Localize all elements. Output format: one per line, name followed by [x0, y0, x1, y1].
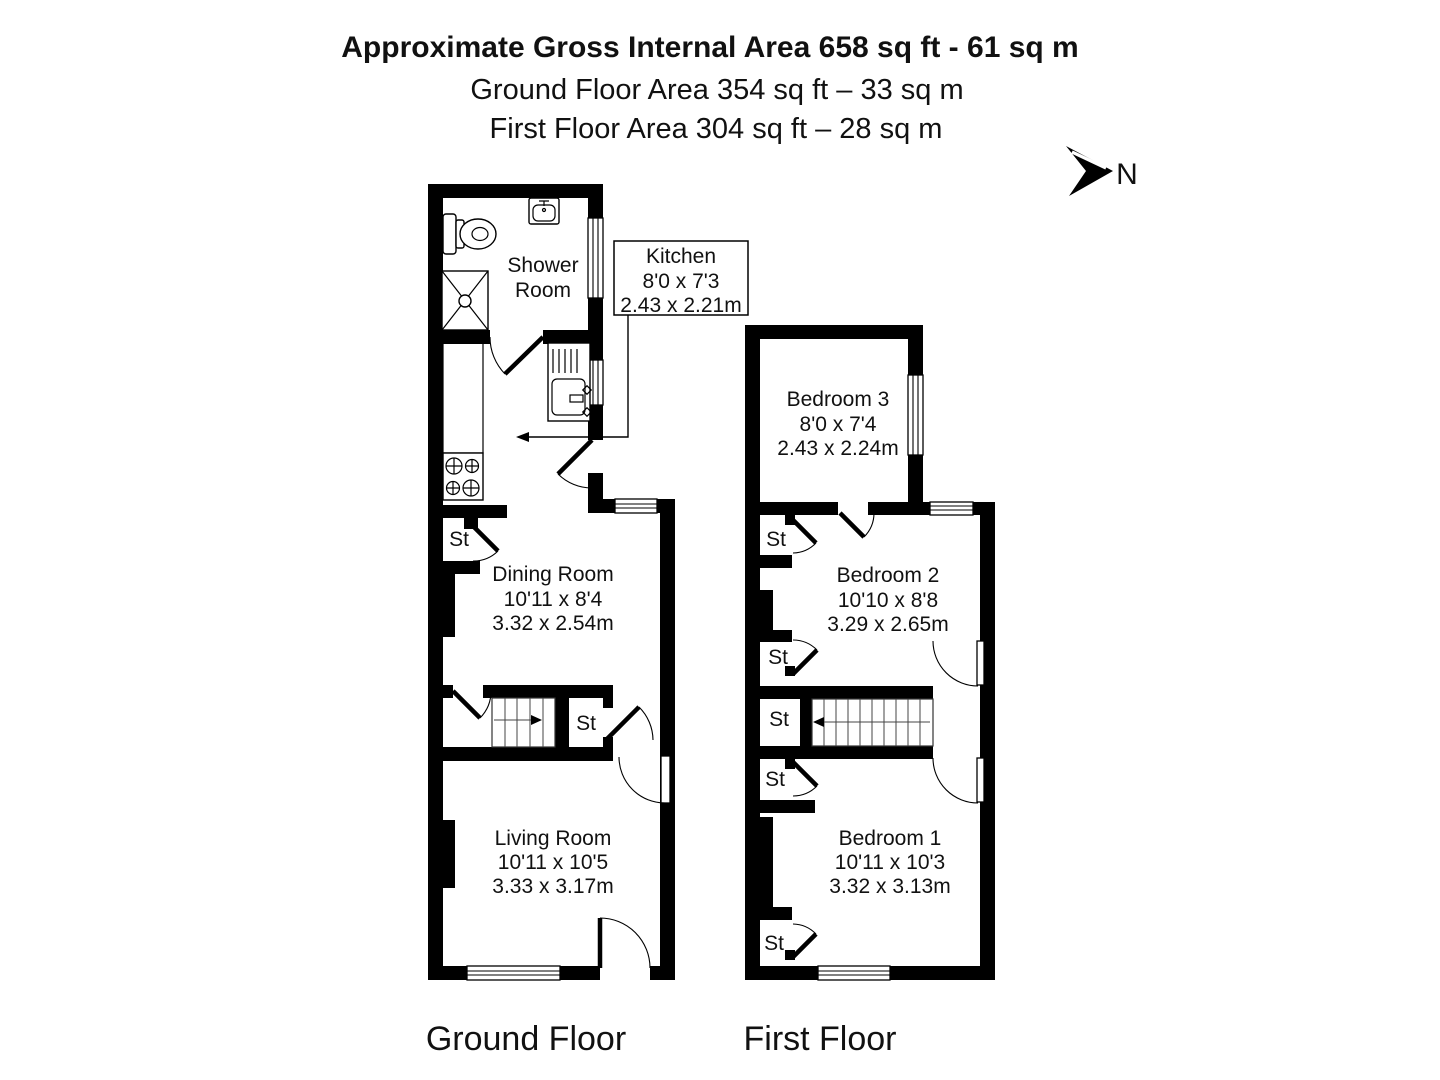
- wall-segment: [588, 197, 603, 218]
- bedroom3-metric: 2.43 x 2.24m: [777, 437, 898, 460]
- door: [473, 526, 498, 561]
- leader-arrowhead: [516, 432, 529, 442]
- wall-segment: [428, 747, 613, 761]
- first-floor-plan: Bedroom 3 8'0 x 7'4 2.43 x 2.24m Bedroom…: [744, 325, 996, 1058]
- wall-segment: [800, 699, 812, 747]
- window: [930, 502, 973, 515]
- wall-segment: [428, 966, 467, 980]
- living-room-name: Living Room: [495, 827, 612, 850]
- store-label: St: [765, 768, 785, 791]
- north-arrow-icon: N: [1066, 146, 1138, 196]
- north-label: N: [1116, 158, 1138, 191]
- ground-floor-caption: Ground Floor: [426, 1020, 626, 1058]
- basin-icon: [529, 198, 559, 224]
- stair-direction-arrow: [531, 715, 542, 725]
- chimney-breast: [443, 563, 455, 637]
- dining-room-metric: 3.32 x 2.54m: [492, 612, 613, 635]
- bedroom2-metric: 3.29 x 2.65m: [827, 613, 948, 636]
- chimney-breast: [758, 817, 773, 907]
- door: [793, 762, 817, 796]
- staircase: [492, 698, 555, 747]
- dining-room-name: Dining Room: [492, 563, 613, 586]
- window: [908, 375, 923, 455]
- wall-segment: [428, 685, 453, 698]
- stair-direction-arrow: [813, 717, 824, 727]
- title-first-area: First Floor Area 304 sq ft – 28 sq m: [490, 113, 943, 145]
- store-label: St: [766, 528, 786, 551]
- door: [793, 924, 816, 957]
- window: [588, 218, 603, 298]
- door: [840, 513, 874, 537]
- toilet-icon: [443, 214, 496, 254]
- wall-segment: [483, 685, 613, 698]
- wall-segment: [650, 966, 675, 980]
- first-floor-caption: First Floor: [744, 1020, 897, 1058]
- wall-segment: [758, 502, 838, 515]
- hob-icon: [443, 453, 483, 500]
- door: [793, 640, 817, 674]
- wall-segment: [428, 184, 443, 980]
- shower-room-label-line1: Shower: [507, 254, 578, 277]
- wall-segment: [890, 966, 995, 980]
- bedroom3-name: Bedroom 3: [787, 388, 890, 411]
- wall-segment: [908, 339, 923, 375]
- wall-segment: [868, 502, 930, 515]
- kitchen-metric: 2.43 x 2.21m: [620, 294, 741, 317]
- floorplan-page: Approximate Gross Internal Area 658 sq f…: [0, 0, 1440, 1080]
- wall-segment: [428, 184, 603, 198]
- living-room-metric: 3.33 x 3.17m: [492, 875, 613, 898]
- wall-segment: [745, 907, 792, 920]
- bedroom2-imperial: 10'10 x 8'8: [838, 589, 938, 612]
- wall-segment: [745, 325, 760, 980]
- store-label: St: [764, 932, 784, 955]
- store-label: St: [769, 708, 789, 731]
- wall-segment: [745, 746, 933, 759]
- wall-segment: [588, 499, 615, 513]
- door: [619, 756, 670, 803]
- wall-segment: [745, 686, 933, 699]
- window: [467, 966, 560, 980]
- bedroom1-metric: 3.32 x 3.13m: [829, 875, 950, 898]
- wall-segment: [745, 800, 815, 813]
- wall-segment: [745, 325, 923, 339]
- wall-segment: [603, 698, 613, 708]
- chimney-breast: [758, 590, 773, 630]
- door: [558, 440, 592, 488]
- ground-floor-plan: Kitchen 8'0 x 7'3 2.43 x 2.21m Shower Ro…: [426, 184, 748, 1058]
- door: [933, 758, 984, 803]
- bedroom1-name: Bedroom 1: [839, 827, 942, 850]
- wall-segment: [745, 966, 818, 980]
- entrance-door: [600, 918, 650, 968]
- floorplan-drawing: Approximate Gross Internal Area 658 sq f…: [0, 0, 1440, 1080]
- kitchen-imperial: 8'0 x 7'3: [643, 270, 720, 293]
- kitchen-counter: [443, 331, 483, 453]
- bedroom3-imperial: 8'0 x 7'4: [800, 413, 877, 436]
- wall-segment: [745, 555, 792, 568]
- door: [793, 520, 816, 553]
- store-label: St: [768, 646, 788, 669]
- store-label: St: [576, 712, 596, 735]
- wall-segment: [543, 330, 603, 344]
- bedroom1-imperial: 10'11 x 10'3: [835, 851, 945, 874]
- window: [818, 966, 890, 980]
- title-ground-area: Ground Floor Area 354 sq ft – 33 sq m: [470, 74, 963, 106]
- wall-segment: [660, 499, 675, 980]
- shower-tray-icon: [442, 271, 488, 330]
- staircase: [812, 699, 933, 746]
- bedroom2-name: Bedroom 2: [837, 564, 940, 587]
- kitchen-name: Kitchen: [646, 245, 716, 268]
- wall-segment: [560, 966, 600, 980]
- store-label: St: [449, 528, 469, 551]
- door: [606, 707, 653, 740]
- kitchen-sink-icon: [548, 343, 591, 421]
- door: [933, 641, 984, 686]
- shower-room-label-line2: Room: [515, 279, 571, 302]
- door: [490, 337, 543, 374]
- window: [615, 499, 657, 513]
- wall-segment: [745, 630, 792, 642]
- wall-segment: [443, 505, 507, 518]
- dining-room-imperial: 10'11 x 8'4: [504, 588, 603, 611]
- title-gross-area: Approximate Gross Internal Area 658 sq f…: [341, 31, 1078, 64]
- wall-segment: [555, 698, 569, 747]
- chimney-breast: [443, 820, 455, 888]
- wall-segment: [980, 502, 995, 980]
- living-room-imperial: 10'11 x 10'5: [498, 851, 608, 874]
